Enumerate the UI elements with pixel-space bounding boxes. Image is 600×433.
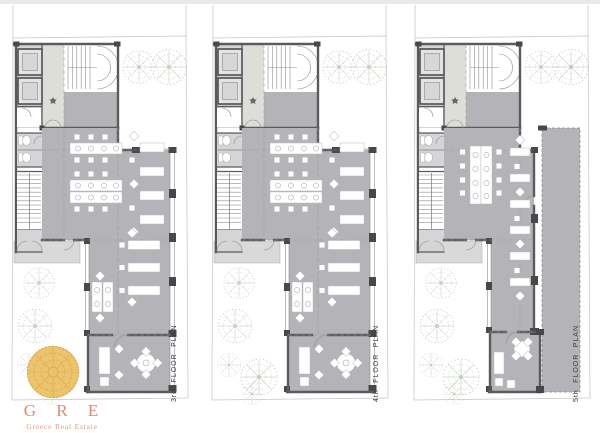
gre-logo: G R E Greece Real Estate [8,344,116,431]
floor-plan-label-3rd: 3rd FLOOR PLAN [170,325,179,402]
gre-logo-acronym: G R E [8,401,116,421]
floor-plan-label-4th: 4th FLOOR PLAN [372,325,381,402]
gre-logo-company-name: Greece Real Estate [8,422,116,431]
floor-plan-label-5th: 5th FLOOR PLAN [572,325,581,402]
gre-logo-emblem-icon [25,344,81,400]
floor-plan-4th [212,5,388,404]
floor-plan-5th [414,5,590,404]
architectural-drawing-sheet: 3rd FLOOR PLAN 4th FLOOR PLAN 5th FLOOR … [0,0,600,433]
